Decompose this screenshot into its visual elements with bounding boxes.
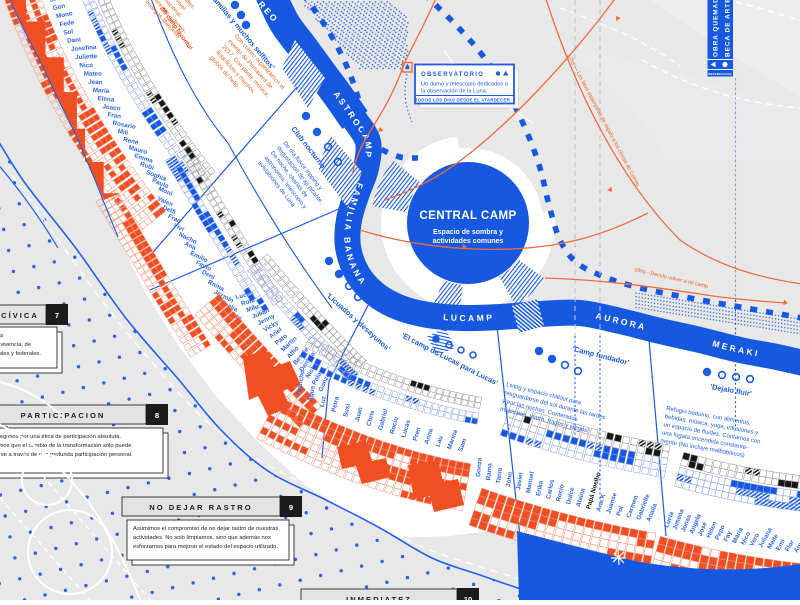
svg-text:CÍVICA: CÍVICA xyxy=(1,311,39,320)
svg-text:Un domo y telescopio dedicados: Un domo y telescopio dedicados a xyxy=(421,82,509,88)
svg-text:Espacio de sombra y: Espacio de sombra y xyxy=(433,229,503,236)
svg-text:las leyes estatales y federale: las leyes estatales y federales. xyxy=(0,351,41,357)
svg-text:actividades. No solo limpiamos: actividades. No solo limpiamos, sino que… xyxy=(133,535,271,541)
svg-text:esforzamos para mejorar el est: esforzamos para mejorar el estado del es… xyxy=(133,544,278,550)
svg-text:10: 10 xyxy=(464,595,472,600)
svg-text:normas de convivencia, de: normas de convivencia, de xyxy=(0,342,31,348)
svg-text:OBRA QUEMADA: OBRA QUEMADA xyxy=(713,0,720,57)
svg-text:María: María xyxy=(93,87,110,95)
svg-text:Juliette: Juliette xyxy=(75,53,98,61)
svg-text:Sol: Sol xyxy=(63,28,74,36)
svg-text:la observación de la Luna.: la observación de la Luna. xyxy=(421,89,488,95)
svg-text:INMEDIATEZ: INMEDIATEZ xyxy=(346,595,412,600)
svg-text:PARTICIPACION: PARTICIPACION xyxy=(21,411,106,420)
svg-text:Asumimos el compromiso de no d: Asumimos el compromiso de no dejar rastr… xyxy=(133,526,278,532)
svg-text:Mateo: Mateo xyxy=(84,71,102,78)
svg-text:9: 9 xyxy=(289,503,293,512)
svg-text:REFERENCIAS: REFERENCIAS xyxy=(708,72,731,76)
svg-text:8: 8 xyxy=(155,411,159,420)
svg-text:lograrse a través de una profu: lograrse a través de una profunda partic… xyxy=(0,452,133,458)
svg-text:actividades comunes: actividades comunes xyxy=(433,238,504,245)
svg-text:Nico: Nico xyxy=(79,62,93,69)
svg-text:Jean: Jean xyxy=(88,79,103,87)
svg-text:7: 7 xyxy=(55,311,59,320)
svg-text:NO DEJAR RASTRO: NO DEJAR RASTRO xyxy=(149,503,252,512)
svg-text:BECA DE ARTE: BECA DE ARTE xyxy=(725,0,732,57)
svg-text:Respetamos las: Respetamos las xyxy=(0,333,4,339)
svg-text:OBSERVATORIO: OBSERVATORIO xyxy=(421,72,484,78)
svg-text:TODOS LOS DIAS DESDE EL ATARDE: TODOS LOS DIAS DESDE EL ATARDECER xyxy=(415,98,511,103)
svg-text:CENTRAL CAMP: CENTRAL CAMP xyxy=(419,209,516,222)
